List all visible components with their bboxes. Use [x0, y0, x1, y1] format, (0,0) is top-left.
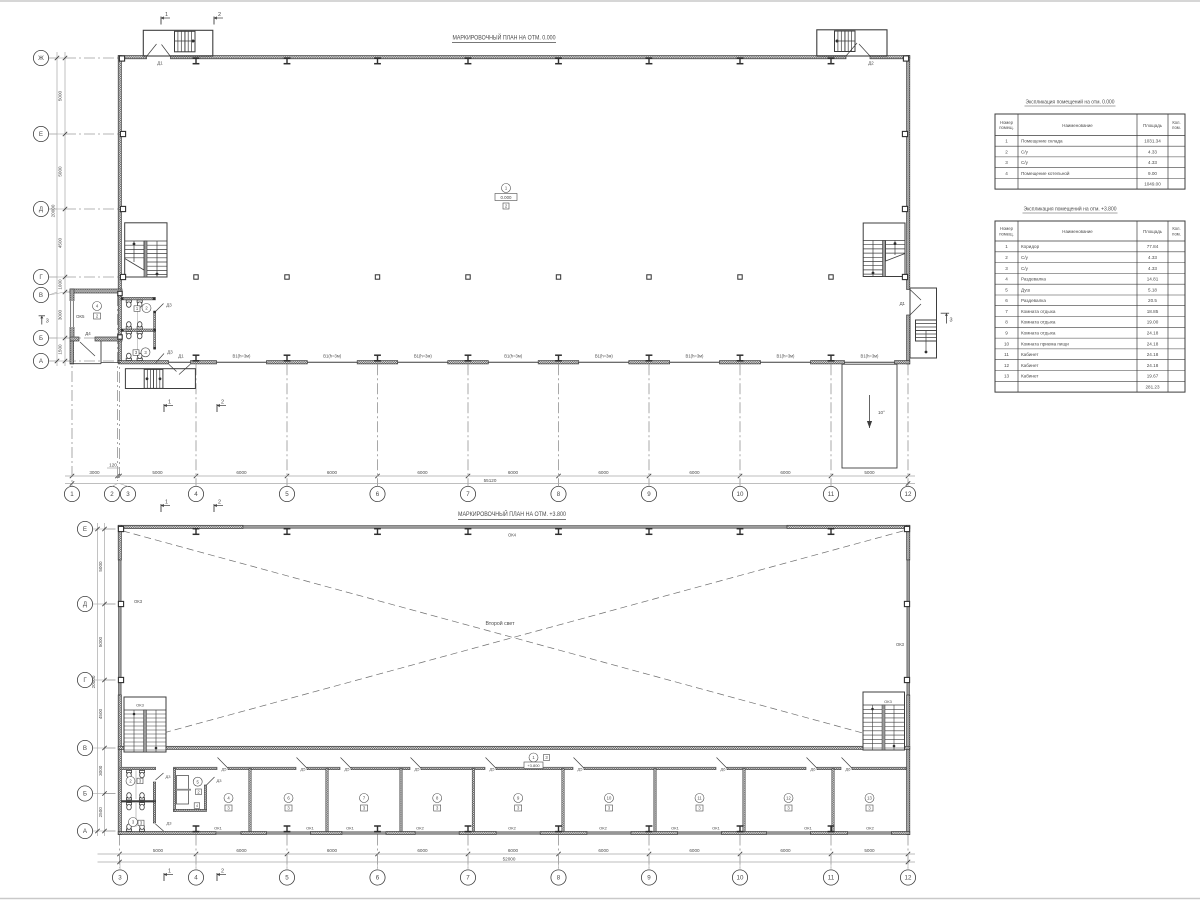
- svg-text:Д3: Д3: [217, 778, 223, 783]
- svg-text:Д5: Д5: [345, 767, 351, 772]
- svg-text:4: 4: [196, 804, 198, 808]
- svg-text:ОК5: ОК5: [76, 314, 85, 319]
- svg-text:24.18: 24.18: [1147, 341, 1159, 346]
- svg-text:9: 9: [647, 491, 651, 498]
- svg-text:1: 1: [168, 400, 171, 406]
- svg-text:Кол.: Кол.: [1172, 120, 1180, 125]
- svg-text:пом.: пом.: [1172, 232, 1181, 237]
- svg-text:Д2: Д2: [868, 61, 874, 66]
- svg-text:11: 11: [697, 796, 702, 801]
- svg-text:0.000: 0.000: [501, 195, 513, 200]
- svg-text:13: 13: [1004, 374, 1010, 379]
- svg-text:4.33: 4.33: [1148, 255, 1157, 260]
- svg-text:6: 6: [376, 491, 380, 498]
- svg-text:24.18: 24.18: [1147, 352, 1159, 357]
- svg-text:Кол.: Кол.: [1172, 226, 1180, 231]
- svg-text:5.18: 5.18: [1148, 287, 1157, 292]
- svg-text:Помещение склада: Помещение склада: [1021, 139, 1063, 144]
- svg-text:Д3: Д3: [167, 821, 173, 826]
- svg-text:5000: 5000: [152, 470, 163, 475]
- svg-text:13: 13: [867, 796, 872, 801]
- svg-text:5000: 5000: [864, 470, 875, 475]
- svg-text:4: 4: [194, 491, 198, 498]
- svg-text:пом.: пом.: [1172, 125, 1181, 130]
- svg-text:МАРКИРОВОЧНЫЙ ПЛАН НА ОТМ. +3.: МАРКИРОВОЧНЫЙ ПЛАН НА ОТМ. +3.800: [458, 510, 566, 518]
- svg-text:В: В: [39, 292, 43, 299]
- svg-text:2: 2: [1005, 255, 1008, 260]
- svg-text:4.33: 4.33: [1148, 266, 1157, 271]
- svg-text:7: 7: [466, 491, 470, 498]
- svg-text:4500: 4500: [98, 708, 103, 719]
- svg-text:Наименование: Наименование: [1062, 229, 1093, 234]
- svg-text:4: 4: [194, 875, 198, 882]
- svg-text:2500: 2500: [98, 807, 103, 818]
- svg-text:Комната отдыха: Комната отдыха: [1021, 309, 1056, 314]
- svg-text:281.23: 281.23: [1145, 385, 1159, 390]
- svg-text:Б: Б: [39, 335, 43, 342]
- svg-text:ОК3: ОК3: [134, 599, 143, 604]
- svg-text:В1(h=3м): В1(h=3м): [323, 354, 341, 359]
- svg-text:ОК2: ОК2: [866, 825, 874, 830]
- svg-text:Е: Е: [39, 131, 43, 138]
- svg-text:6000: 6000: [598, 848, 609, 853]
- svg-text:Д5: Д5: [415, 767, 421, 772]
- svg-text:5000: 5000: [98, 561, 103, 572]
- svg-text:12: 12: [786, 796, 791, 801]
- svg-text:Раздевалка: Раздевалка: [1021, 298, 1046, 303]
- svg-text:С/у: С/у: [1021, 160, 1029, 165]
- svg-text:ОК1: ОК1: [214, 825, 222, 830]
- svg-text:ОК3: ОК3: [884, 699, 892, 704]
- svg-text:Душ: Душ: [1021, 287, 1031, 292]
- svg-text:Д3: Д3: [166, 774, 172, 779]
- svg-text:Д5: Д5: [578, 767, 584, 772]
- svg-text:4500: 4500: [58, 237, 63, 248]
- svg-text:В: В: [83, 745, 87, 752]
- svg-text:помещ.: помещ.: [999, 125, 1013, 130]
- svg-text:МАРКИРОВОЧНЫЙ ПЛАН НА ОТМ. 0.0: МАРКИРОВОЧНЫЙ ПЛАН НА ОТМ. 0.000: [453, 34, 556, 42]
- svg-text:Второй свет: Второй свет: [486, 620, 516, 627]
- svg-text:Коридор: Коридор: [1021, 244, 1040, 249]
- svg-text:Д1: Д1: [900, 301, 906, 306]
- svg-text:3: 3: [950, 318, 953, 324]
- svg-text:10: 10: [1004, 341, 1010, 346]
- svg-text:Комната отдыха: Комната отдыха: [1021, 331, 1056, 336]
- svg-text:120: 120: [109, 463, 117, 468]
- svg-text:8: 8: [557, 491, 561, 498]
- svg-text:6000: 6000: [508, 848, 519, 853]
- svg-text:ОК3: ОК3: [896, 642, 905, 647]
- svg-text:1: 1: [165, 500, 168, 506]
- svg-text:Д4: Д4: [85, 331, 91, 336]
- svg-text:1000: 1000: [58, 279, 63, 290]
- svg-text:В1(h=3м): В1(h=3м): [414, 354, 432, 359]
- svg-text:1: 1: [1005, 244, 1008, 249]
- svg-text:С/у: С/у: [1021, 149, 1029, 154]
- svg-text:2: 2: [221, 400, 224, 406]
- svg-text:6000: 6000: [327, 470, 338, 475]
- svg-text:19.67: 19.67: [1147, 374, 1159, 379]
- svg-text:В1(h=3м): В1(h=3м): [686, 354, 704, 359]
- svg-text:Экспликация помещений на отм.: Экспликация помещений на отм. 0.000: [1026, 99, 1115, 106]
- svg-text:6000: 6000: [417, 470, 428, 475]
- svg-text:18.85: 18.85: [1147, 309, 1159, 314]
- svg-text:3000: 3000: [98, 765, 103, 776]
- svg-text:Д5: Д5: [490, 767, 496, 772]
- svg-text:10°: 10°: [878, 410, 885, 415]
- svg-text:12: 12: [1004, 363, 1010, 368]
- svg-text:52000: 52000: [503, 856, 516, 861]
- svg-text:1: 1: [168, 869, 171, 875]
- svg-text:1049.00: 1049.00: [1144, 182, 1161, 187]
- svg-text:Д1: Д1: [178, 353, 184, 358]
- svg-text:С/у: С/у: [1021, 266, 1029, 271]
- svg-text:Раздевалка: Раздевалка: [1021, 277, 1046, 282]
- svg-text:Комната отдыха: Комната отдыха: [1021, 320, 1056, 325]
- svg-text:8: 8: [1005, 320, 1008, 325]
- svg-text:ОК1: ОК1: [671, 825, 679, 830]
- svg-text:В1(h=3м): В1(h=3м): [233, 354, 251, 359]
- svg-text:6000: 6000: [689, 470, 700, 475]
- svg-text:55120: 55120: [484, 478, 497, 483]
- svg-text:12: 12: [905, 875, 912, 882]
- svg-text:Д5: Д5: [301, 767, 307, 772]
- svg-text:3: 3: [1005, 266, 1008, 271]
- svg-text:6: 6: [1005, 298, 1008, 303]
- svg-text:7: 7: [466, 875, 470, 882]
- svg-text:Д5: Д5: [222, 767, 228, 772]
- svg-text:Помещение котельной: Помещение котельной: [1021, 170, 1070, 176]
- svg-text:Номер: Номер: [1000, 120, 1014, 125]
- svg-text:5000: 5000: [58, 166, 63, 177]
- svg-text:5000: 5000: [864, 848, 875, 853]
- svg-text:2: 2: [218, 500, 221, 506]
- svg-text:6000: 6000: [236, 848, 247, 853]
- svg-text:Комната приема пищи: Комната приема пищи: [1021, 341, 1069, 346]
- svg-text:6000: 6000: [780, 848, 791, 853]
- svg-text:1: 1: [1005, 139, 1008, 144]
- svg-text:5000: 5000: [58, 90, 63, 101]
- svg-text:20000: 20000: [51, 204, 56, 217]
- svg-text:Кабинет: Кабинет: [1021, 363, 1039, 368]
- svg-text:1500: 1500: [58, 344, 63, 355]
- svg-text:6000: 6000: [417, 848, 428, 853]
- svg-text:Д1: Д1: [157, 61, 163, 66]
- svg-text:24.18: 24.18: [1147, 331, 1159, 336]
- svg-text:6000: 6000: [598, 470, 609, 475]
- svg-text:6000: 6000: [327, 848, 338, 853]
- svg-text:ОК3: ОК3: [136, 703, 144, 708]
- svg-text:Ж: Ж: [38, 55, 44, 62]
- svg-text:2: 2: [110, 491, 114, 498]
- svg-text:9.00: 9.00: [1148, 171, 1157, 176]
- svg-text:1: 1: [165, 12, 168, 18]
- svg-text:Д6: Д6: [721, 767, 727, 772]
- svg-text:7: 7: [1005, 309, 1008, 314]
- svg-text:6000: 6000: [780, 470, 791, 475]
- svg-text:10: 10: [737, 875, 744, 882]
- svg-text:9: 9: [1005, 331, 1008, 336]
- svg-text:14.81: 14.81: [1147, 277, 1159, 282]
- svg-text:Площадь: Площадь: [1143, 123, 1163, 128]
- svg-text:1: 1: [70, 491, 74, 498]
- svg-text:11: 11: [828, 491, 835, 498]
- svg-text:19.00: 19.00: [1147, 320, 1159, 325]
- svg-text:3000: 3000: [58, 309, 63, 320]
- svg-text:4: 4: [1005, 277, 1008, 282]
- svg-text:4.33: 4.33: [1148, 149, 1157, 154]
- svg-text:9: 9: [647, 875, 651, 882]
- svg-text:Номер: Номер: [1000, 226, 1014, 231]
- svg-text:10: 10: [737, 491, 744, 498]
- svg-text:ОК2: ОК2: [508, 825, 516, 830]
- svg-text:6: 6: [376, 875, 380, 882]
- svg-text:Е: Е: [83, 526, 87, 533]
- svg-text:77.84: 77.84: [1147, 244, 1159, 249]
- svg-text:Кабинет: Кабинет: [1021, 374, 1039, 379]
- svg-text:5: 5: [1005, 287, 1008, 292]
- svg-text:5: 5: [285, 875, 289, 882]
- svg-text:Площадь: Площадь: [1143, 229, 1163, 234]
- svg-text:5000: 5000: [98, 636, 103, 647]
- svg-text:ОК1: ОК1: [804, 825, 812, 830]
- svg-text:2: 2: [1005, 149, 1008, 154]
- svg-text:ОК1: ОК1: [712, 825, 720, 830]
- svg-text:12: 12: [905, 491, 912, 498]
- svg-text:11: 11: [828, 875, 835, 882]
- svg-text:4: 4: [1005, 171, 1008, 176]
- svg-text:В1(h=3м): В1(h=3м): [777, 354, 795, 359]
- svg-text:6000: 6000: [236, 470, 247, 475]
- svg-text:ОК2: ОК2: [599, 825, 607, 830]
- svg-text:1031.34: 1031.34: [1144, 139, 1161, 144]
- svg-text:помещ.: помещ.: [999, 232, 1013, 237]
- svg-text:3: 3: [118, 875, 122, 882]
- svg-text:В1(h=3м): В1(h=3м): [861, 354, 879, 359]
- svg-text:Б: Б: [83, 791, 87, 798]
- svg-text:В1(h=3м): В1(h=3м): [595, 354, 613, 359]
- svg-text:24.18: 24.18: [1147, 363, 1159, 368]
- svg-text:С/у: С/у: [1021, 255, 1029, 260]
- svg-text:3: 3: [126, 491, 130, 498]
- svg-text:Наименование: Наименование: [1062, 123, 1093, 128]
- svg-text:ОК1: ОК1: [346, 825, 354, 830]
- svg-text:3000: 3000: [89, 470, 100, 475]
- svg-text:Д3: Д3: [167, 350, 173, 355]
- svg-text:В1(h=3м): В1(h=3м): [504, 354, 522, 359]
- svg-text:3: 3: [1005, 160, 1008, 165]
- svg-text:11: 11: [1004, 352, 1009, 357]
- svg-text:ОК1: ОК1: [306, 825, 314, 830]
- svg-text:Кабинет: Кабинет: [1021, 352, 1039, 357]
- svg-text:6000: 6000: [508, 470, 519, 475]
- svg-text:Д6: Д6: [846, 767, 852, 772]
- svg-text:10: 10: [607, 796, 612, 801]
- svg-text:+3.800: +3.800: [527, 763, 540, 768]
- svg-text:5000: 5000: [153, 848, 164, 853]
- svg-text:2: 2: [218, 12, 221, 18]
- svg-text:3: 3: [46, 319, 49, 325]
- svg-text:20000: 20000: [91, 675, 96, 688]
- svg-text:ОК2: ОК2: [416, 825, 424, 830]
- svg-text:4.33: 4.33: [1148, 160, 1157, 165]
- svg-text:6000: 6000: [689, 848, 700, 853]
- svg-text:2: 2: [221, 869, 224, 875]
- svg-text:20.5: 20.5: [1148, 298, 1157, 303]
- svg-text:5: 5: [285, 491, 289, 498]
- svg-text:ОК4: ОК4: [508, 533, 517, 538]
- svg-text:Д3: Д3: [166, 303, 172, 308]
- svg-text:Экспликация помещений на отм.: Экспликация помещений на отм. +3.800: [1024, 206, 1117, 213]
- svg-text:Д6: Д6: [811, 767, 817, 772]
- svg-text:8: 8: [557, 875, 561, 882]
